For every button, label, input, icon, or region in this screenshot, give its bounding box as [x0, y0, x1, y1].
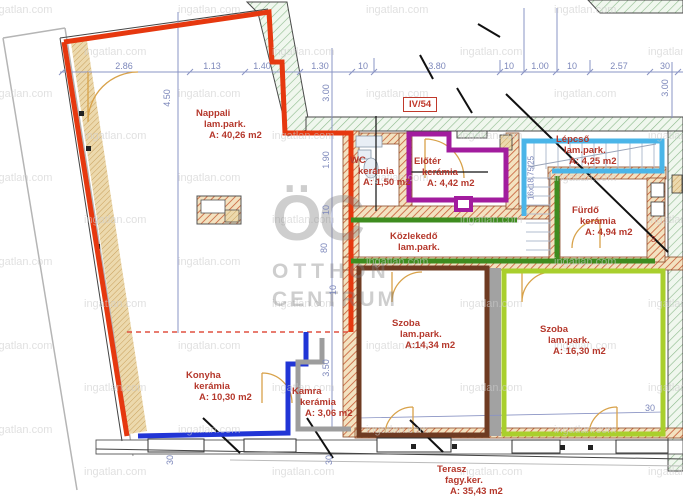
dim-label: 30 — [165, 455, 175, 465]
room-label-szoba-1: Szobalam.park.A:14,34 m2 — [392, 318, 455, 351]
eloter-bump — [456, 198, 471, 210]
dim-label: 30 — [660, 61, 670, 71]
room-label-eloter: ElőtérkerámiaA: 4,42 m2 — [414, 156, 475, 189]
dim-label: 10 — [504, 61, 514, 71]
dim-label: 30 — [645, 403, 655, 413]
dim-label: 10 — [567, 61, 577, 71]
dim-label: 2.86 — [115, 61, 133, 71]
dim-label: 3.00 — [660, 79, 670, 97]
dim-label: 80 — [319, 243, 329, 253]
dim-label: 2.57 — [610, 61, 628, 71]
shaft-block — [197, 196, 241, 224]
dim-label: 10 — [321, 205, 331, 215]
dim-label: 1.00 — [531, 61, 549, 71]
floorplan-drawing — [0, 0, 683, 500]
terrace-wall — [96, 438, 683, 466]
dim-label: 30 — [324, 455, 334, 465]
room-label-konyha: KonyhakerámiaA: 10,30 m2 — [186, 370, 252, 403]
dim-label: 1.90 — [321, 151, 331, 169]
floorplan-page: ingatlan.comingatlan.comingatlan.cominga… — [0, 0, 683, 500]
szoba1-outline-brown — [359, 268, 487, 435]
dim-label: 3.50 — [321, 359, 331, 377]
dim-label: 4.50 — [162, 89, 172, 107]
dim-label: 1.30 — [311, 61, 329, 71]
room-label-nappali: Nappalilam.park.A: 40,26 m2 — [196, 108, 262, 141]
unit-number-label: IV/54 — [403, 97, 437, 112]
room-label-furdo: FürdőkerámiaA: 4,94 m2 — [572, 205, 633, 238]
room-label-kozlekedo: Közlekedőlam.park. — [390, 231, 440, 253]
dim-label: 3.00 — [321, 84, 331, 102]
room-label-kamra: KamrakerámiaA: 3,06 m2 — [292, 386, 353, 419]
room-label-szoba-2: Szobalam.park.A: 16,30 m2 — [540, 324, 606, 357]
dim-label: 3.80 — [428, 61, 446, 71]
room-label-lepcso: Lépcsőlam.park.A: 4,25 m2 — [556, 134, 617, 167]
room-label-wc: WCkerámiaA: 1,50 m2 — [350, 155, 411, 188]
dim-label: 10 — [358, 61, 368, 71]
stair-note-label: 16x18,75/25 — [527, 156, 536, 200]
dim-label: 1.40 — [253, 61, 271, 71]
dim-label: 10 — [328, 285, 338, 295]
small-number-label: 3 — [651, 235, 655, 244]
room-label-terasz: Teraszfagy.ker.A: 35,43 m2 — [437, 464, 503, 497]
dim-label: 1.13 — [203, 61, 221, 71]
